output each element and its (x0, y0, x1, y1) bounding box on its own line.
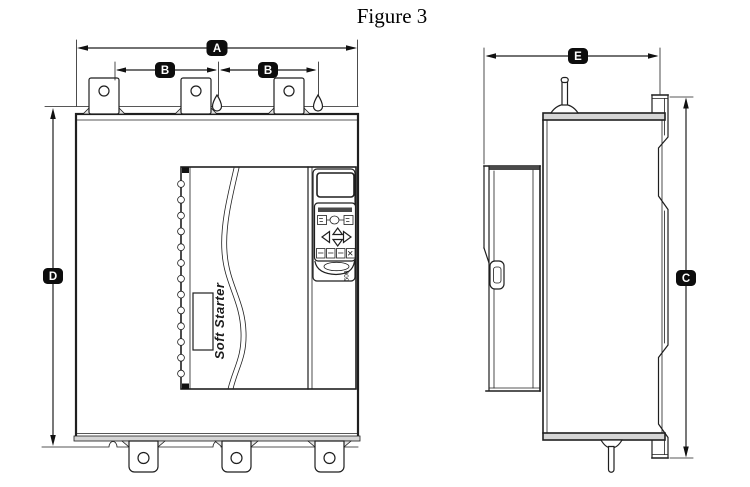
plate-notched-profile (659, 95, 669, 458)
arrowhead (77, 45, 88, 51)
mounting-hole (284, 86, 294, 96)
dimension-label-a: A (213, 43, 221, 55)
side-body (543, 78, 665, 473)
corner-screw-mark (182, 168, 189, 174)
top-mounting-tabs (83, 78, 323, 114)
mounting-hole (231, 453, 242, 464)
corner-screw-mark (182, 384, 189, 390)
dimension-d: D (43, 108, 63, 446)
arrowhead (50, 108, 56, 119)
technical-drawing: Figure 3 (0, 0, 750, 487)
arrowhead (683, 98, 689, 109)
dimension-label-c: C (682, 273, 690, 285)
mounting-hole (324, 453, 335, 464)
top-hanger-pin (562, 80, 568, 105)
arrowhead (116, 67, 126, 72)
cover-latch-inner (494, 267, 502, 283)
dimension-label-e: E (574, 51, 582, 63)
cover-edge-bevel (484, 248, 489, 263)
figure-title: Figure 3 (357, 4, 428, 28)
dimension-c: C (670, 97, 696, 458)
side-view: E C (484, 48, 696, 472)
front-view: Soft Starter (42, 40, 360, 472)
display-screen (317, 173, 354, 197)
bottom-hanger-pin (609, 447, 615, 473)
bottom-mounting-tabs (122, 441, 351, 472)
arrowhead (683, 447, 689, 458)
keypad-header-bar (318, 208, 352, 213)
arrowhead (220, 67, 230, 72)
mounting-hole (99, 86, 109, 96)
back-plate (652, 95, 668, 458)
body-top-band (543, 113, 665, 120)
mounting-hole (191, 86, 201, 96)
figure-canvas: Figure 3 (0, 0, 750, 487)
dimension-label-b-right: B (264, 65, 272, 77)
cover-top-band (489, 167, 540, 170)
brand-text: Soft Starter (212, 282, 227, 359)
rating-label (193, 293, 213, 350)
top-pin-cap (561, 78, 568, 83)
arrowhead (648, 53, 659, 58)
power-indicator-icon (330, 216, 339, 224)
keypad-module: 500 (313, 169, 356, 281)
arrowhead (307, 67, 317, 72)
dimension-label-d: D (49, 271, 57, 283)
model-text: 500 (344, 270, 351, 281)
function-button (344, 216, 353, 225)
body-bottom-band (543, 433, 665, 440)
side-front-cover (484, 166, 540, 391)
arrowhead (50, 435, 56, 446)
arrowhead (207, 67, 217, 72)
bottom-base-band (74, 436, 360, 441)
arrowhead (486, 53, 497, 58)
mounting-hole (138, 453, 149, 464)
dimension-label-b-left: B (161, 65, 169, 77)
function-button (318, 216, 327, 225)
arrowhead (346, 45, 357, 51)
keyhole-slot (213, 95, 222, 111)
keyhole-slot (314, 95, 323, 111)
top-grommet-dome (551, 105, 578, 114)
